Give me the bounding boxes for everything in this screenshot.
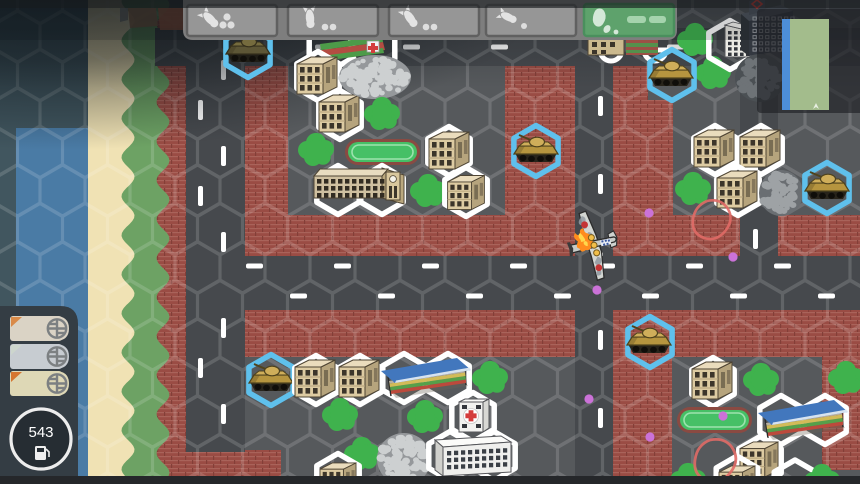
svg-text:543: 543: [28, 424, 53, 441]
